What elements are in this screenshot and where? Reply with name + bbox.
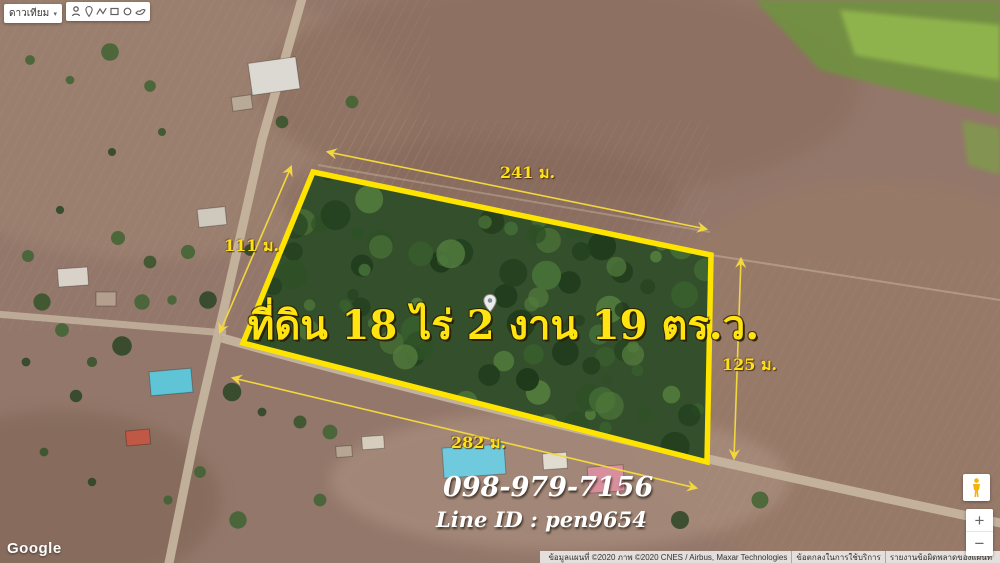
- marker-icon[interactable]: [82, 4, 95, 19]
- polyline-icon[interactable]: [95, 4, 108, 19]
- circle-icon[interactable]: [121, 4, 134, 19]
- map-type-label: ดาวเทียม: [9, 6, 49, 21]
- zoom-in-button[interactable]: +: [966, 509, 993, 532]
- dimension-label-left: 111 ม.: [224, 234, 279, 259]
- terms-of-use-link[interactable]: ข้อตกลงในการใช้บริการ: [791, 551, 884, 563]
- attribution-copyright: ข้อมูลแผนที่ ©2020 ภาพ ©2020 CNES / Airb…: [544, 551, 791, 563]
- phone-number: 098-979-7156: [443, 472, 653, 503]
- line-id: Line ID : pen9654: [436, 507, 647, 532]
- attribution-bar: ข้อมูลแผนที่ ©2020 ภาพ ©2020 CNES / Airb…: [540, 551, 1000, 563]
- chevron-down-icon: ▾: [53, 10, 57, 18]
- pegman-icon: [971, 478, 982, 498]
- google-logo[interactable]: Google: [7, 540, 62, 557]
- rectangle-icon[interactable]: [108, 4, 121, 19]
- dimension-label-top: 241 ม.: [500, 161, 555, 186]
- map-type-dropdown[interactable]: ดาวเทียม ▾: [4, 4, 62, 23]
- pegman-button[interactable]: [963, 474, 990, 501]
- zoom-control: + −: [966, 509, 993, 556]
- dimension-label-bottom: 282 ม.: [451, 431, 506, 456]
- pan-icon[interactable]: [69, 4, 82, 19]
- drawing-toolbar: [66, 2, 150, 21]
- satellite-map-canvas[interactable]: 241 ม. 111 ม. 125 ม. 282 ม. ที่ดิน 18 ไร…: [0, 0, 1000, 563]
- zoom-out-button[interactable]: −: [966, 532, 993, 555]
- plot-title: ที่ดิน 18 ไร่ 2 งาน 19 ตร.ว.: [248, 293, 759, 357]
- hand-icon[interactable]: [134, 4, 147, 19]
